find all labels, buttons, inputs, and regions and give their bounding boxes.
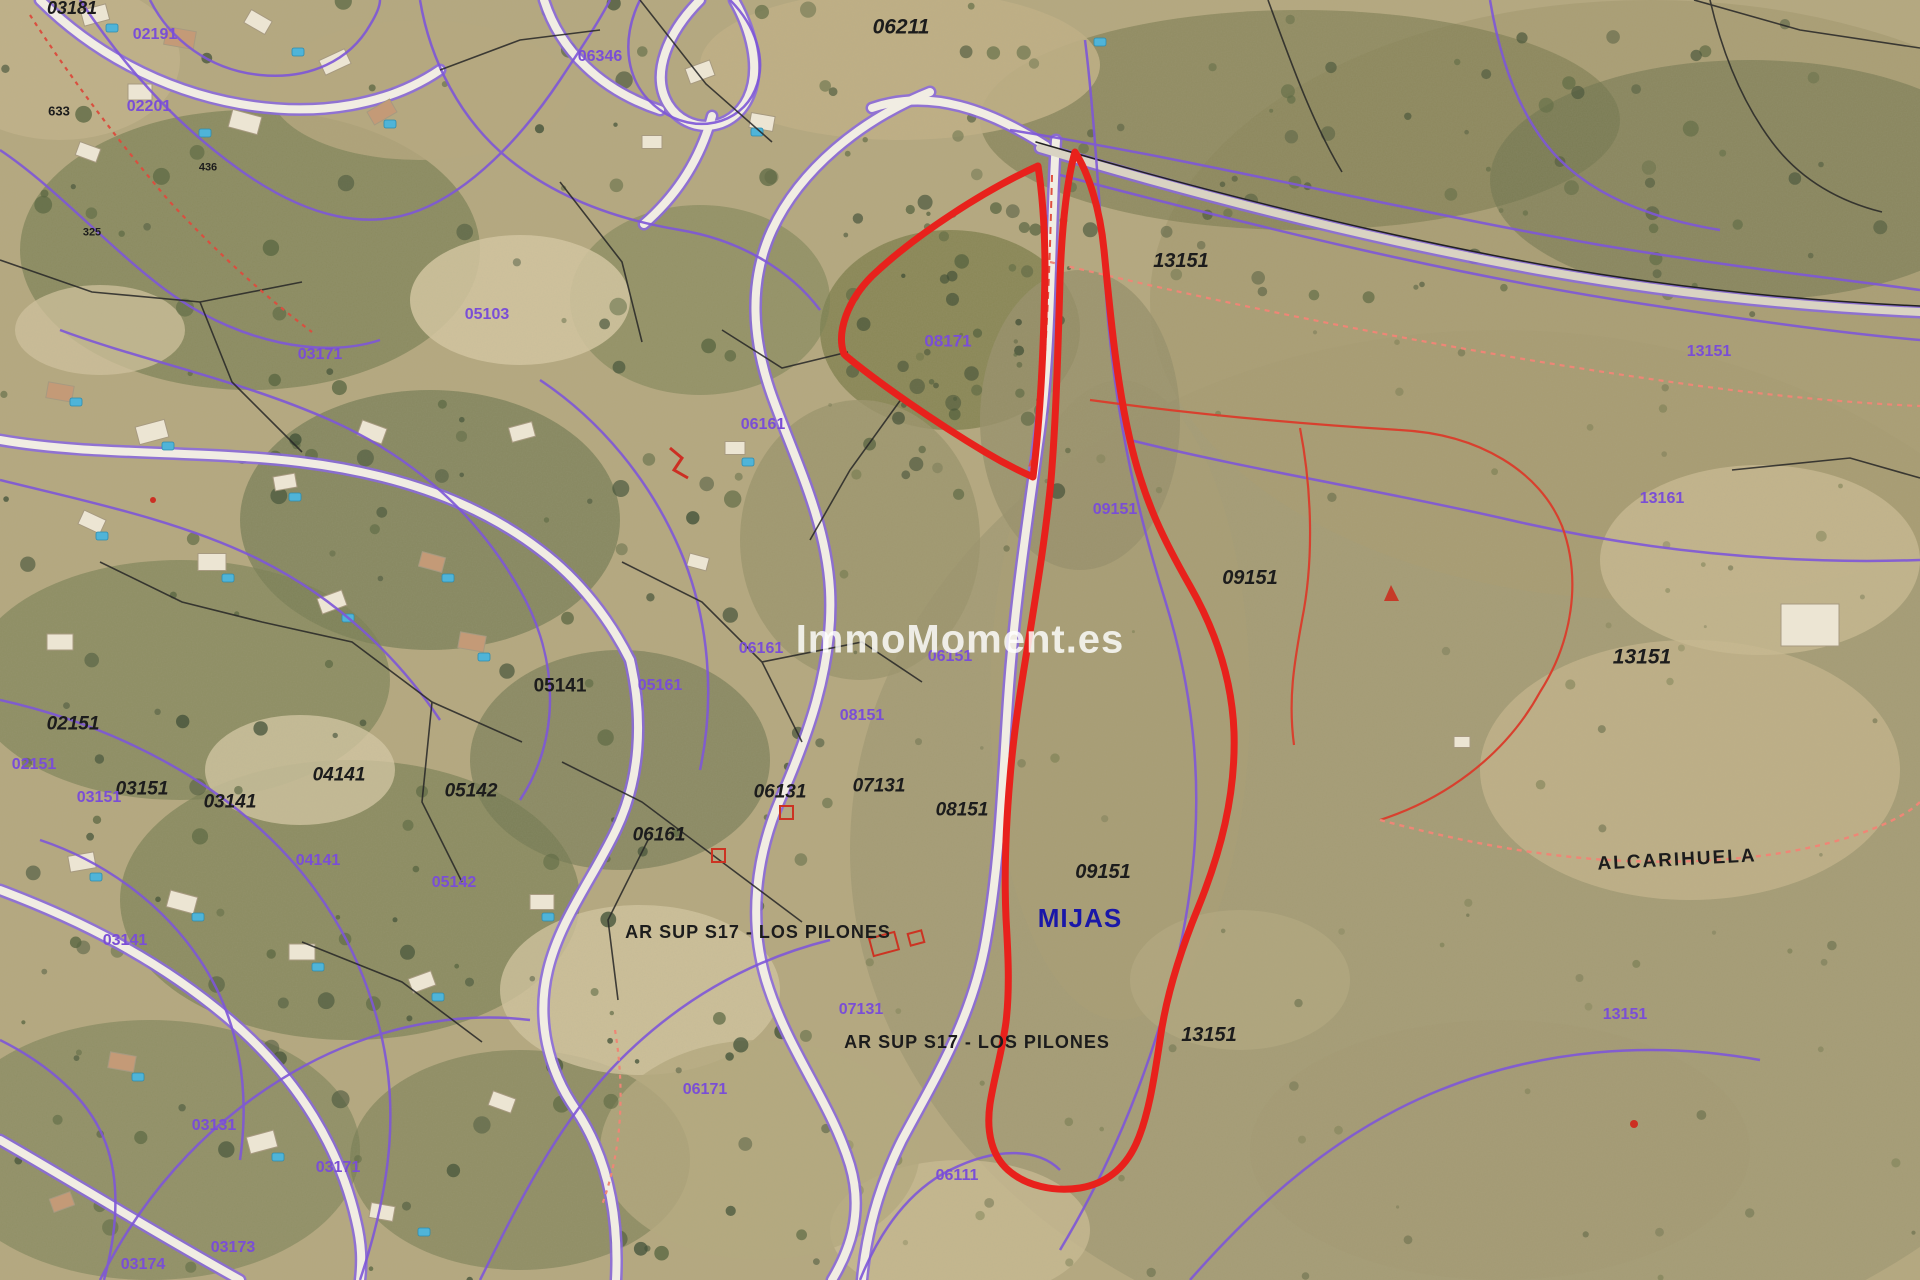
sector-label: AR SUP S17 - LOS PILONES <box>625 923 891 941</box>
parcel-label-purple: 13151 <box>1603 1007 1648 1023</box>
parcel-label-black: 02151 <box>47 715 100 734</box>
parcel-label-purple: 08151 <box>840 708 885 724</box>
parcel-label-black: 03141 <box>204 793 257 812</box>
parcel-label-purple: 09151 <box>1093 502 1138 518</box>
parcel-label-black: 06131 <box>754 783 807 802</box>
parcel-label-black: 03181 <box>47 0 97 17</box>
municipality-label: MIJAS <box>1038 905 1122 931</box>
parcel-label-purple: 03141 <box>103 933 148 949</box>
parcel-label-black: 436 <box>199 163 217 174</box>
parcel-label-purple: 02191 <box>133 27 178 43</box>
parcel-label-purple: 03171 <box>316 1160 361 1176</box>
parcel-label-purple: 06161 <box>739 641 784 657</box>
parcel-label-purple: 03174 <box>121 1257 166 1273</box>
watermark: ImmoMoment.es <box>796 618 1125 663</box>
parcel-label-purple: 06171 <box>683 1082 728 1098</box>
parcel-label-purple: 13151 <box>1687 344 1732 360</box>
parcel-label-purple: 05142 <box>432 875 477 891</box>
parcel-label-black: 04141 <box>313 766 366 785</box>
parcel-label-purple: 02151 <box>12 757 57 773</box>
parcel-label-black: 08151 <box>936 801 989 820</box>
parcel-label-purple: 08171 <box>924 333 971 350</box>
parcel-label-purple: 05161 <box>638 678 683 694</box>
parcel-label-purple: 03173 <box>211 1240 256 1256</box>
parcel-label-purple: 02201 <box>127 99 172 115</box>
parcel-label-purple: 03171 <box>298 347 343 363</box>
parcel-label-purple: 05103 <box>465 307 510 323</box>
place-label: ALCARIHUELA <box>1597 846 1757 873</box>
parcel-label-purple: 04141 <box>296 853 341 869</box>
sector-label: AR SUP S17 - LOS PILONES <box>844 1033 1110 1051</box>
parcel-label-black: 09151 <box>1222 568 1278 588</box>
parcel-label-black: 06211 <box>873 17 930 38</box>
parcel-label-black: 13151 <box>1153 251 1209 271</box>
parcel-label-purple: 03131 <box>192 1118 237 1134</box>
parcel-label-black: 05142 <box>445 782 498 801</box>
parcel-label-black: 07131 <box>853 777 906 796</box>
parcel-label-purple: 03151 <box>77 790 122 806</box>
parcel-label-black: 325 <box>83 228 101 239</box>
parcel-label-purple: 06346 <box>578 49 623 65</box>
parcel-label-black: 03151 <box>116 780 169 799</box>
parcel-label-purple: 13161 <box>1640 491 1685 507</box>
parcel-label-black: 05141 <box>534 677 587 696</box>
parcel-label-purple: 06161 <box>741 417 786 433</box>
parcel-label-black: 13151 <box>1181 1025 1237 1045</box>
aerial-cadastral-map: 0621103181633436325131510915113151091511… <box>0 0 1920 1280</box>
parcel-label-black: 633 <box>48 105 70 118</box>
parcel-label-purple: 07131 <box>839 1002 884 1018</box>
parcel-label-black: 09151 <box>1075 862 1131 882</box>
parcel-label-black: 13151 <box>1613 647 1671 668</box>
parcel-label-purple: 06111 <box>936 1168 979 1184</box>
parcel-label-black: 06161 <box>633 826 686 845</box>
